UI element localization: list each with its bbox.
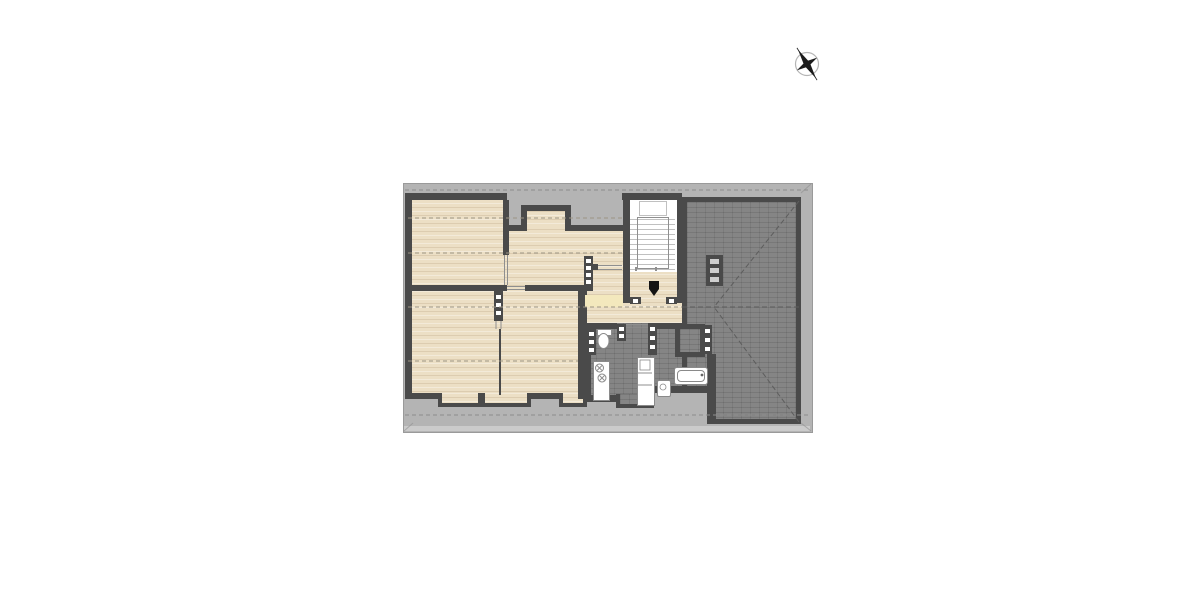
roof-hip-lines: [714, 201, 799, 422]
cabinet-divisions: [638, 360, 652, 385]
north-arrow-icon: [784, 40, 830, 90]
toilet: [598, 334, 609, 349]
stove-burners: [596, 364, 607, 382]
bathtub-drain: [701, 374, 704, 377]
sink-basin: [660, 384, 666, 390]
door-threshold-lines: [496, 255, 648, 329]
compass-star: [787, 42, 827, 87]
plan-overlay: [403, 183, 813, 433]
door-marker-icon: [649, 281, 659, 296]
floor-plan: [403, 183, 813, 433]
headroom-contour-lines: [405, 190, 811, 415]
